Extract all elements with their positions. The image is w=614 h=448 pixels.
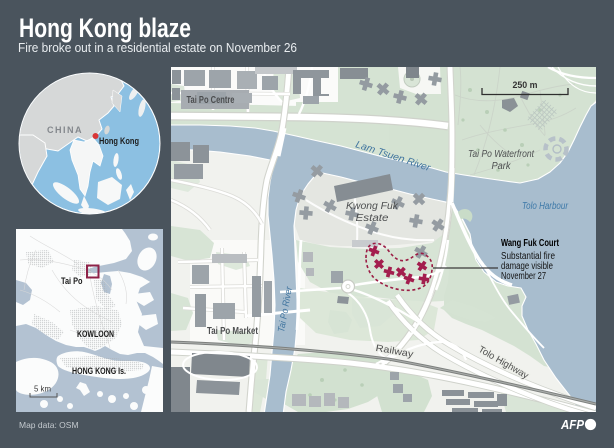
svg-text:November 27: November 27 bbox=[501, 271, 546, 282]
svg-text:Tai Po Centre: Tai Po Centre bbox=[187, 95, 235, 106]
svg-text:Fire broke out in a residentia: Fire broke out in a residential estate o… bbox=[18, 41, 297, 55]
svg-text:Park: Park bbox=[492, 161, 512, 172]
svg-text:CHINA: CHINA bbox=[47, 125, 83, 136]
svg-text:Hong Kong: Hong Kong bbox=[99, 136, 139, 147]
svg-text:HONG KONG Is.: HONG KONG Is. bbox=[72, 366, 126, 376]
svg-text:Map data: OSM: Map data: OSM bbox=[19, 420, 79, 430]
svg-text:Hong Kong blaze: Hong Kong blaze bbox=[19, 13, 191, 43]
svg-text:Tai Po Market: Tai Po Market bbox=[207, 326, 259, 337]
svg-text:Tolo Harbour: Tolo Harbour bbox=[522, 201, 569, 212]
svg-text:Estate: Estate bbox=[356, 213, 389, 224]
svg-text:Tai Po: Tai Po bbox=[61, 276, 83, 286]
svg-text:5 km: 5 km bbox=[34, 385, 51, 394]
svg-text:KOWLOON: KOWLOON bbox=[77, 329, 114, 339]
svg-text:Wang Fuk Court: Wang Fuk Court bbox=[501, 237, 559, 249]
svg-text:250 m: 250 m bbox=[513, 80, 538, 91]
svg-text:AFP: AFP bbox=[560, 417, 584, 432]
svg-text:Kwong Fuk: Kwong Fuk bbox=[346, 201, 399, 212]
svg-text:Tai Po Waterfront: Tai Po Waterfront bbox=[468, 149, 535, 160]
